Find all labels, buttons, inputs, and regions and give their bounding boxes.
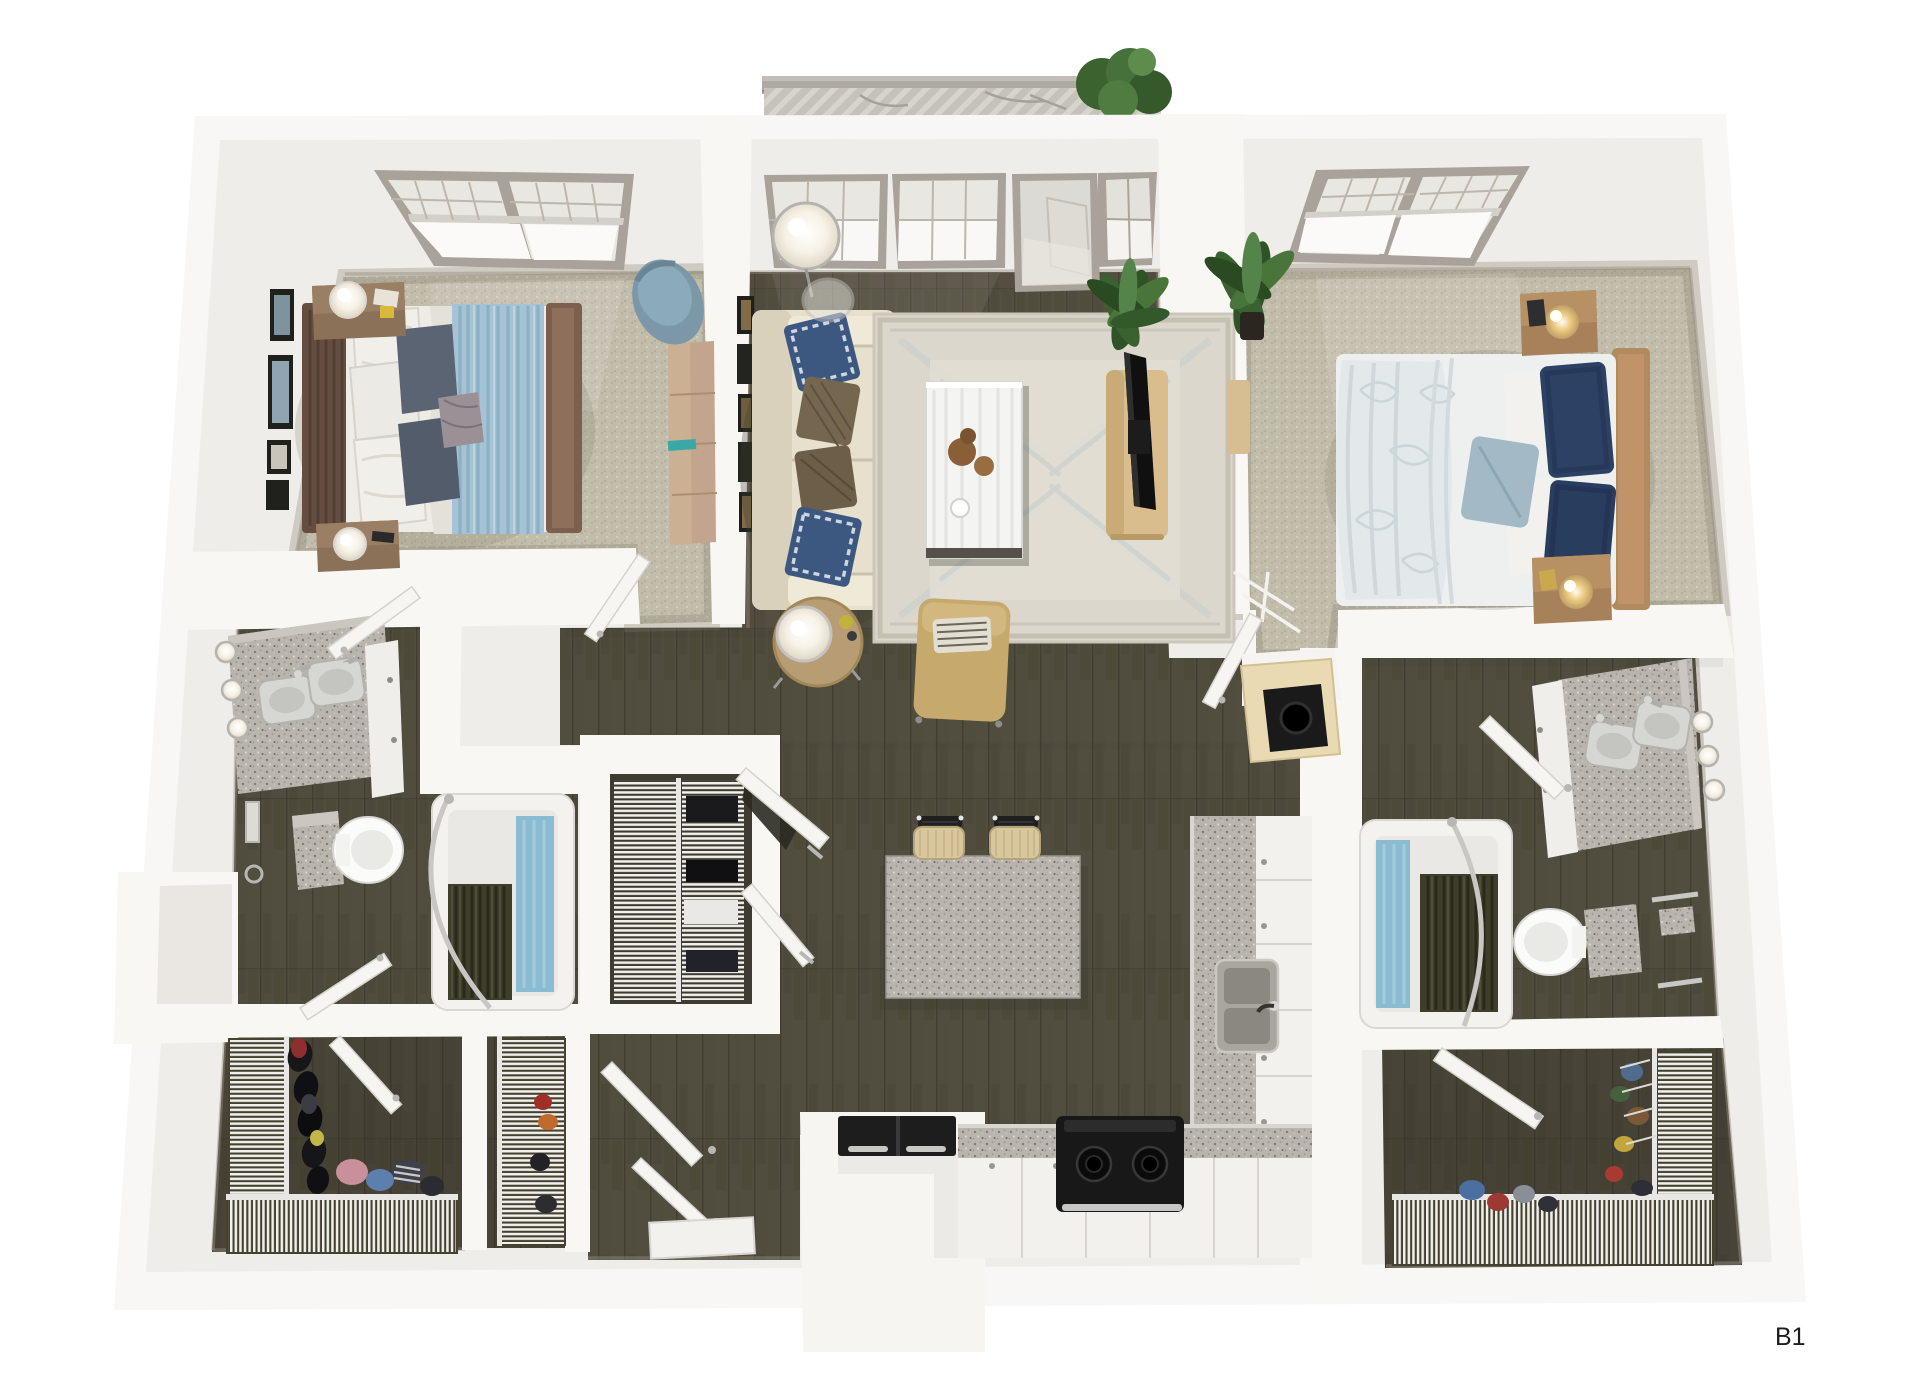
svg-text:B1: B1 xyxy=(1775,1323,1806,1351)
